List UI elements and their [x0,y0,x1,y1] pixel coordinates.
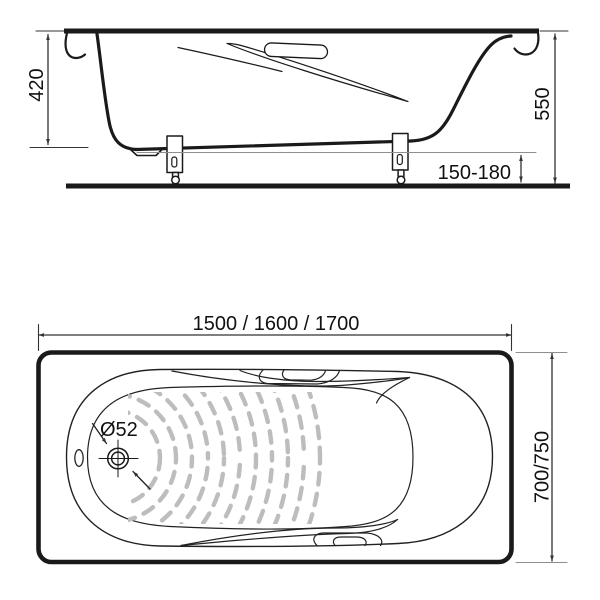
tub-left-lip [66,33,85,58]
interior-reflection-lines [178,43,408,102]
left-foot-ball [172,176,180,184]
tub-left-wall [97,34,136,150]
tub-right-lip [515,33,539,54]
drain-diameter-label: Ø52 [100,419,138,441]
overflow-mark [75,450,83,467]
right-foot-slot [397,155,402,165]
bathtub-technical-drawing: 420 550 150-180 [0,0,600,600]
left-foot [167,136,183,184]
top-view: Ø52 1500 / 1600 / 1700 700/750 [0,250,567,600]
drawing-svg: 420 550 150-180 [0,0,600,600]
feet-height-label: 150-180 [438,162,511,184]
left-foot-slot [172,157,177,167]
length-label: 1500 / 1600 / 1700 [193,313,360,335]
width-label: 700/750 [532,431,554,503]
side-view: 420 550 150-180 [26,31,570,186]
side-depth-label: 420 [26,68,48,101]
grip-slot [264,43,328,59]
right-foot [393,134,409,184]
tub-right-slope [411,36,511,141]
right-foot-ball [397,176,405,184]
side-height-label: 550 [532,87,554,120]
